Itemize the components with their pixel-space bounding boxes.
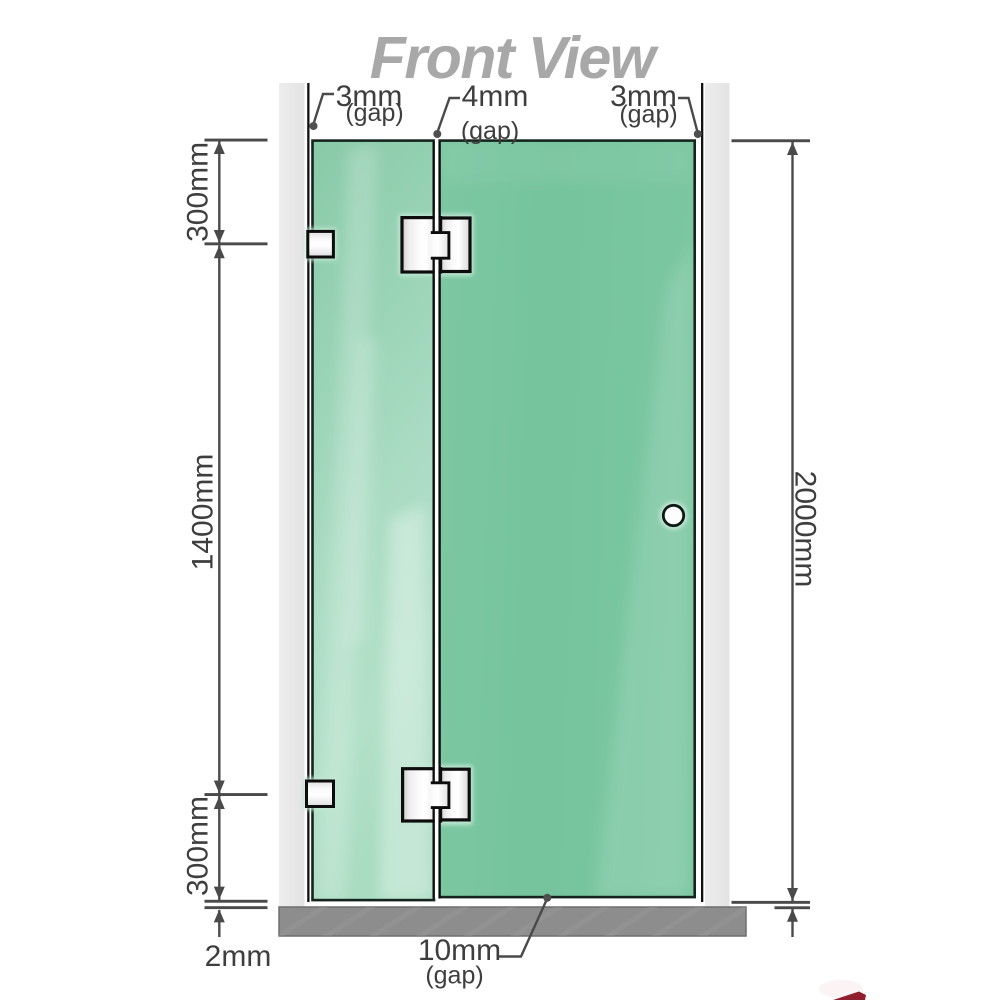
svg-text:(gap): (gap) (619, 101, 677, 129)
svg-text:1400mm: 1400mm (187, 454, 220, 571)
svg-text:300mm: 300mm (182, 142, 215, 242)
svg-text:4mm: 4mm (462, 80, 529, 113)
svg-text:300mm: 300mm (182, 796, 215, 896)
svg-text:(gap): (gap) (461, 117, 519, 145)
svg-text:2mm: 2mm (205, 940, 272, 973)
svg-text:(gap): (gap) (345, 99, 403, 127)
svg-text:(gap): (gap) (425, 962, 483, 990)
svg-text:2000mm: 2000mm (789, 471, 822, 588)
